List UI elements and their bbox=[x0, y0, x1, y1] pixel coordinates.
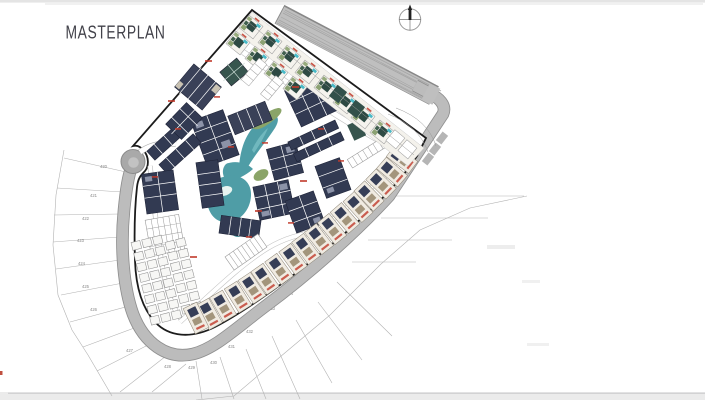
svg-text:420: 420 bbox=[100, 164, 108, 169]
svg-text:428: 428 bbox=[164, 364, 172, 369]
svg-text:432: 432 bbox=[246, 329, 254, 334]
svg-text:425: 425 bbox=[82, 284, 90, 289]
svg-text:429: 429 bbox=[188, 365, 196, 370]
svg-text:430: 430 bbox=[210, 360, 218, 365]
svg-text:422: 422 bbox=[82, 216, 90, 221]
svg-text:421: 421 bbox=[90, 193, 98, 198]
svg-text:427: 427 bbox=[126, 348, 134, 353]
svg-text:426: 426 bbox=[90, 307, 98, 312]
svg-text:431: 431 bbox=[228, 344, 236, 349]
svg-text:423: 423 bbox=[77, 238, 85, 243]
svg-text:424: 424 bbox=[78, 261, 86, 266]
svg-text:MASTERPLAN: MASTERPLAN bbox=[65, 23, 165, 43]
